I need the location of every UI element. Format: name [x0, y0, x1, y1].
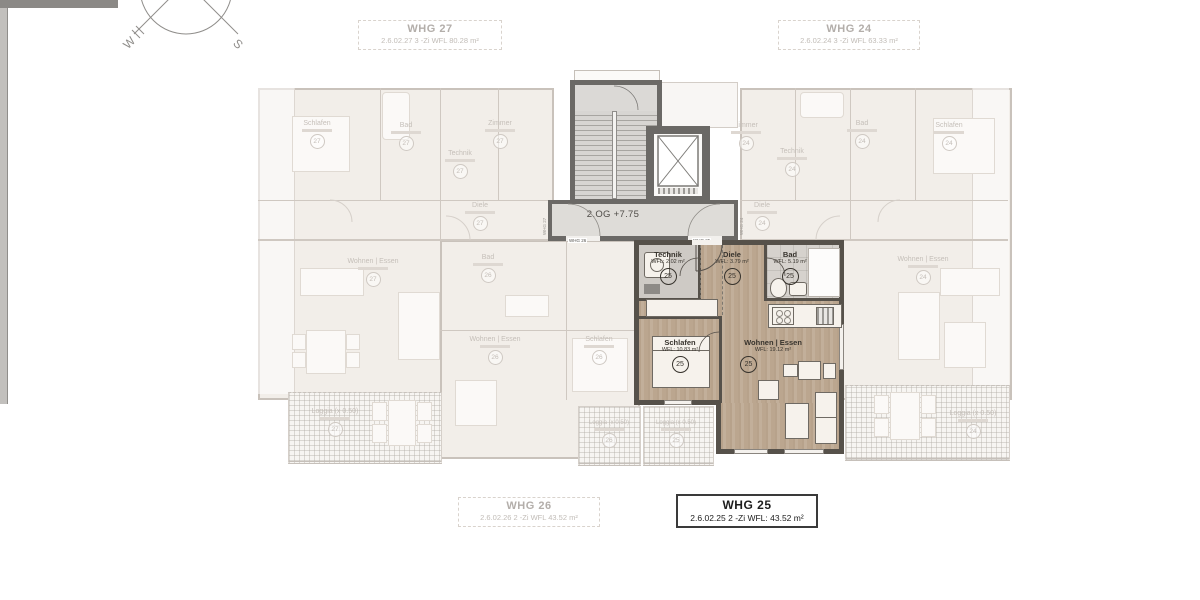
window	[734, 449, 768, 454]
floorplan-canvas: W S Loggia (x	[0, 0, 1200, 600]
unit-number-circle: 27	[328, 422, 343, 437]
room-name: Diele	[704, 250, 760, 259]
room-label-schlafen-27: Schlafen27	[282, 120, 352, 149]
room-label-zimmer-27: Zimmer27	[470, 120, 530, 149]
side-table-shape	[758, 380, 779, 400]
unit-number-circle: 25	[740, 356, 757, 373]
wall	[719, 316, 722, 403]
sofa-shape	[398, 292, 440, 360]
room-label-diele-25: Diele WFL: 3.79 m² 25	[704, 250, 760, 285]
room-label-technik-27: Technik27	[430, 150, 490, 179]
unit-box-title: WHG 27	[359, 23, 501, 35]
compass-west-label: W	[120, 33, 138, 51]
unit-whg25[interactable]: Technik WFL: 2.02 m² 25 Diele WFL: 3.79 …	[634, 240, 844, 454]
wall	[850, 88, 851, 240]
wall	[258, 200, 550, 201]
window	[839, 324, 844, 370]
elevator-x-icon	[654, 134, 702, 196]
room-name: Loggia (x 0.50)	[300, 408, 370, 416]
door-tag-whg26: WHG 26	[568, 238, 587, 243]
chair-shape	[874, 395, 889, 414]
room-name: Schlafen	[648, 338, 712, 347]
elevator-door-hatch	[658, 188, 698, 194]
adjacent-building-bottom	[0, 0, 118, 8]
chair-shape	[292, 334, 306, 350]
wall	[440, 330, 636, 331]
room-label-bad-27: Bad27	[376, 122, 436, 151]
adjacent-building-edge	[0, 0, 8, 404]
room-name: Bad	[770, 250, 810, 259]
unit-number-circle: 26	[602, 433, 617, 448]
room-label-wohnen-25: Wohnen | Essen WFL: 19.12 m² 25	[728, 338, 818, 373]
room-label-wohnen-24: Wohnen | Essen24	[868, 256, 978, 285]
unit-number-circle: 25	[782, 268, 799, 285]
chair-shape	[417, 424, 432, 443]
wall	[634, 240, 844, 245]
room-label-schlafen-24: Schlafen24	[914, 122, 984, 151]
room-label-bad-24: Bad24	[832, 120, 892, 149]
unit-box-title: WHG 26	[459, 500, 599, 512]
room-label-bad-26: Bad26	[458, 254, 518, 283]
chair-shape	[372, 402, 387, 421]
dining-table-shape	[306, 330, 346, 374]
chair-shape	[874, 418, 889, 437]
bathtub-shape	[800, 92, 844, 118]
unit-box-whg26[interactable]: WHG 26 2.6.02.26 2 -Zi WFL 43.52 m²	[458, 497, 600, 527]
chair-shape	[921, 418, 936, 437]
room-label-wohnen-26: Wohnen | Essen26	[440, 336, 550, 365]
room-label-loggia-24: Loggia (x 0.50) 24	[938, 410, 1008, 439]
unit-box-title: WHG 25	[678, 498, 816, 512]
elevator-cab-area	[654, 134, 702, 196]
wall-tag-whg24: WHG 24	[739, 205, 744, 235]
unit-box-details: 2.6.02.26 2 -Zi WFL 43.52 m²	[459, 513, 599, 522]
unit-box-details: 2.6.02.24 3 -Zi WFL 63.33 m²	[779, 36, 919, 45]
sofa-shape	[815, 392, 837, 444]
unit-box-whg27[interactable]: WHG 27 2.6.02.27 3 -Zi WFL 80.28 m²	[358, 20, 502, 50]
table-shape	[455, 380, 497, 426]
wall-tag-whg27: WHG 27	[542, 205, 547, 235]
room-area: WFL: 5.19 m²	[770, 259, 810, 266]
kitchen-counter-shape	[505, 295, 549, 317]
room-area: WFL: 3.79 m²	[704, 259, 760, 266]
stair-flight	[575, 111, 612, 199]
wall	[258, 239, 550, 241]
entry-door-opening	[692, 240, 722, 245]
room-label-technik-24: Technik24	[762, 148, 822, 177]
chair-shape	[292, 352, 306, 368]
room-label-schlafen-26: Schlafen26	[564, 336, 634, 365]
unit-box-title: WHG 24	[779, 23, 919, 35]
wall	[795, 88, 796, 200]
compass-south-label: S	[230, 36, 246, 52]
chair-shape	[823, 363, 836, 379]
wall	[764, 298, 841, 301]
chair-shape	[417, 402, 432, 421]
room-name: Loggia (x 0.50)	[580, 420, 638, 427]
stair-landing	[575, 85, 657, 111]
chair-shape	[921, 395, 936, 414]
unit-number-circle: 24	[966, 424, 981, 439]
room-label-schlafen-25: Schlafen WFL: 10.83 m² 25	[648, 338, 712, 373]
dashed-line	[700, 245, 701, 298]
cooktop-shape	[772, 307, 794, 325]
room-label-loggia-27: Loggia (x 0.50) 27	[300, 408, 370, 437]
unit-number-circle: 25	[672, 356, 689, 373]
wall	[734, 200, 738, 241]
core-upper-room	[658, 82, 738, 128]
wall	[764, 245, 767, 298]
wardrobe-shape	[646, 299, 718, 317]
unit-number-circle: 25	[724, 268, 741, 285]
chair-shape	[372, 424, 387, 443]
wall	[566, 240, 567, 400]
appliance-shape	[816, 307, 834, 325]
room-area: WFL: 19.12 m²	[728, 347, 818, 354]
wall	[548, 200, 552, 241]
room-name: Wohnen | Essen	[728, 338, 818, 347]
room-name: Loggia (x 0.50)	[938, 410, 1008, 418]
room-label-technik-25: Technik WFL: 2.02 m² 25	[638, 250, 698, 285]
technik-unit-shape	[644, 284, 660, 294]
elevator-shaft	[646, 126, 710, 204]
unit-box-details: 2.6.02.25 2 -Zi WFL: 43.52 m²	[678, 513, 816, 523]
floor-level-label: 2.OG +7.75	[578, 209, 648, 220]
dining-table-shape	[944, 322, 986, 368]
loggia-table-shape	[388, 400, 416, 446]
unit-box-whg24[interactable]: WHG 24 2.6.02.24 3 -Zi WFL 63.33 m²	[778, 20, 920, 50]
room-name: Technik	[638, 250, 698, 259]
wall	[552, 200, 734, 204]
wall	[740, 200, 1008, 201]
room-label-bad-25: Bad WFL: 5.19 m² 25	[770, 250, 810, 285]
room-label-wohnen-27: Wohnen | Essen27	[318, 258, 428, 287]
wall	[716, 400, 721, 454]
lounge-chair-shape	[785, 403, 809, 439]
compass-icon: W S	[118, 0, 258, 60]
room-label-loggia-26: Loggia (x 0.50) 26	[580, 420, 638, 448]
loggia-door	[664, 400, 692, 405]
room-area: WFL: 2.02 m²	[638, 259, 698, 266]
sofa-shape	[898, 292, 940, 360]
unit-box-whg25-selected[interactable]: WHG 25 2.6.02.25 2 -Zi WFL: 43.52 m²	[676, 494, 818, 528]
unit-box-details: 2.6.02.27 3 -Zi WFL 80.28 m²	[359, 36, 501, 45]
unit-number-circle: 25	[660, 268, 677, 285]
loggia-table-shape	[890, 392, 920, 440]
window	[784, 449, 824, 454]
room-label-diele-27: Diele27	[450, 202, 510, 231]
room-area: WFL: 10.83 m²	[648, 347, 712, 354]
chair-shape	[346, 352, 360, 368]
chair-shape	[346, 334, 360, 350]
shower-shape	[808, 248, 840, 297]
